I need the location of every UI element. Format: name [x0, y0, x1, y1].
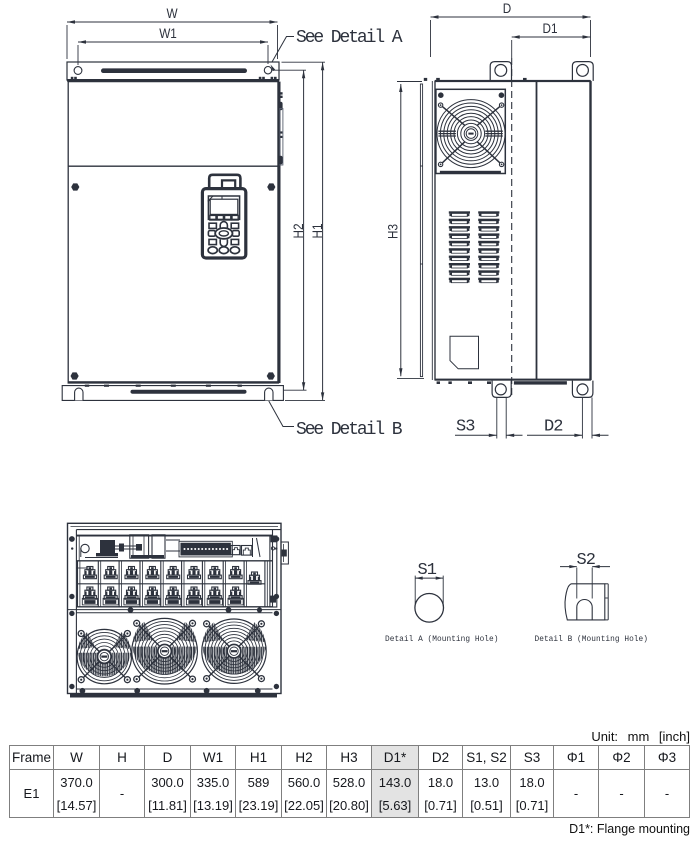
- svg-text:See Detail A: See Detail A: [296, 28, 403, 48]
- svg-text:H3: H3: [384, 224, 400, 239]
- svg-text:Detail A (Mounting Hole): Detail A (Mounting Hole): [385, 636, 499, 644]
- svg-text:D: D: [503, 0, 511, 16]
- svg-text:H2: H2: [290, 223, 306, 238]
- svg-text:D1: D1: [542, 20, 557, 36]
- svg-text:W: W: [166, 5, 178, 21]
- svg-text:D2: D2: [544, 418, 562, 437]
- svg-text:S3: S3: [456, 418, 475, 437]
- svg-text:W1: W1: [159, 25, 177, 41]
- svg-text:See Detail B: See Detail B: [296, 420, 403, 440]
- svg-text:Detail B (Mounting Hole): Detail B (Mounting Hole): [535, 636, 649, 644]
- svg-text:S2: S2: [577, 551, 595, 570]
- svg-text:H1: H1: [309, 223, 325, 238]
